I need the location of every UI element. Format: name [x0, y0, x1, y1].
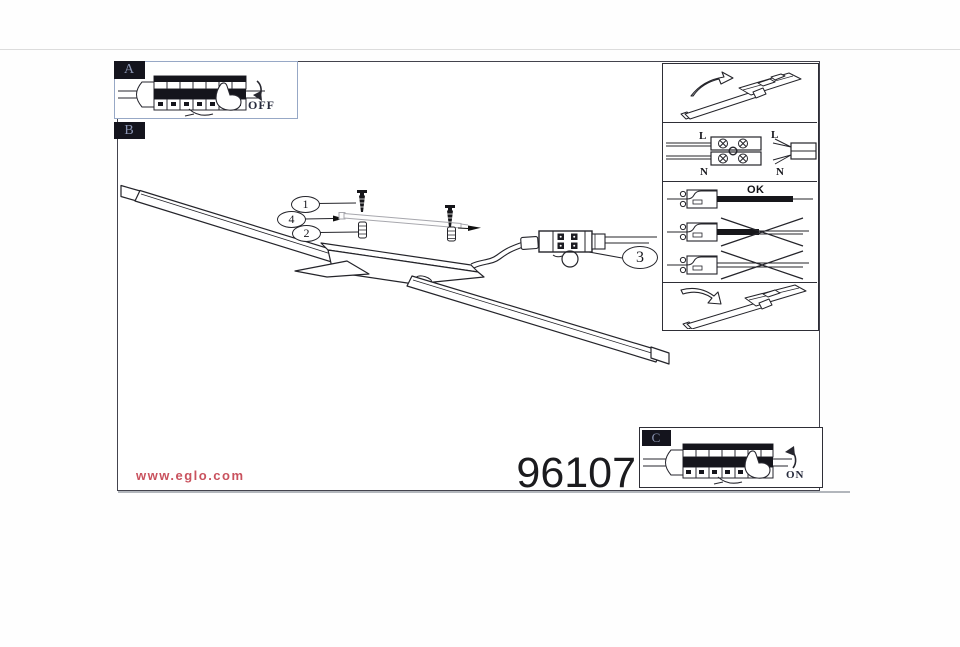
instruction-panel: L N L N [662, 63, 819, 331]
callout-2: 2 [292, 225, 321, 242]
on-label: ON [786, 469, 805, 481]
panel-step-close-cover [663, 283, 817, 330]
open-cover-drawing [663, 64, 817, 121]
page-edge-line [0, 49, 960, 50]
callout-2-number: 2 [304, 226, 310, 241]
ok-label: OK [747, 185, 765, 196]
step-c-box: C ON [639, 427, 823, 488]
panel-step-cable-clamp: OK [663, 182, 817, 283]
website-text: www.eglo.com [136, 468, 245, 483]
frame-shadow [118, 491, 850, 493]
callout-3-number: 3 [636, 249, 644, 267]
wiring-drawing [663, 123, 817, 180]
fixture-arm-right [407, 276, 661, 362]
step-b-label: B [114, 122, 145, 139]
step-c-label: C [642, 430, 671, 446]
open-arrow-icon [691, 72, 733, 96]
live-left-label: L [699, 131, 706, 142]
instruction-sheet: 1 4 2 3 [0, 0, 960, 647]
neutral-right-label: N [776, 167, 784, 178]
live-right-label: L [771, 130, 778, 141]
step-a-label: A [114, 61, 145, 79]
cable-clamp-drawing [663, 182, 817, 281]
rotate-on-arrow-icon [785, 446, 796, 468]
product-number: 96107 [500, 455, 636, 492]
off-label: OFF [248, 98, 275, 113]
panel-step-open-cover [663, 64, 817, 123]
neutral-left-label: N [700, 167, 708, 178]
panel-step-wiring: L N L N [663, 123, 817, 182]
cable-clamp-loop [562, 251, 578, 267]
close-cover-drawing [663, 283, 817, 329]
close-arrow-icon [681, 288, 721, 304]
callout-3: 3 [622, 246, 658, 269]
callout-1-number: 1 [303, 197, 309, 212]
callout-4-number: 4 [289, 212, 295, 227]
step-a-box: A OFF [114, 61, 298, 119]
mains-cable [471, 241, 529, 268]
